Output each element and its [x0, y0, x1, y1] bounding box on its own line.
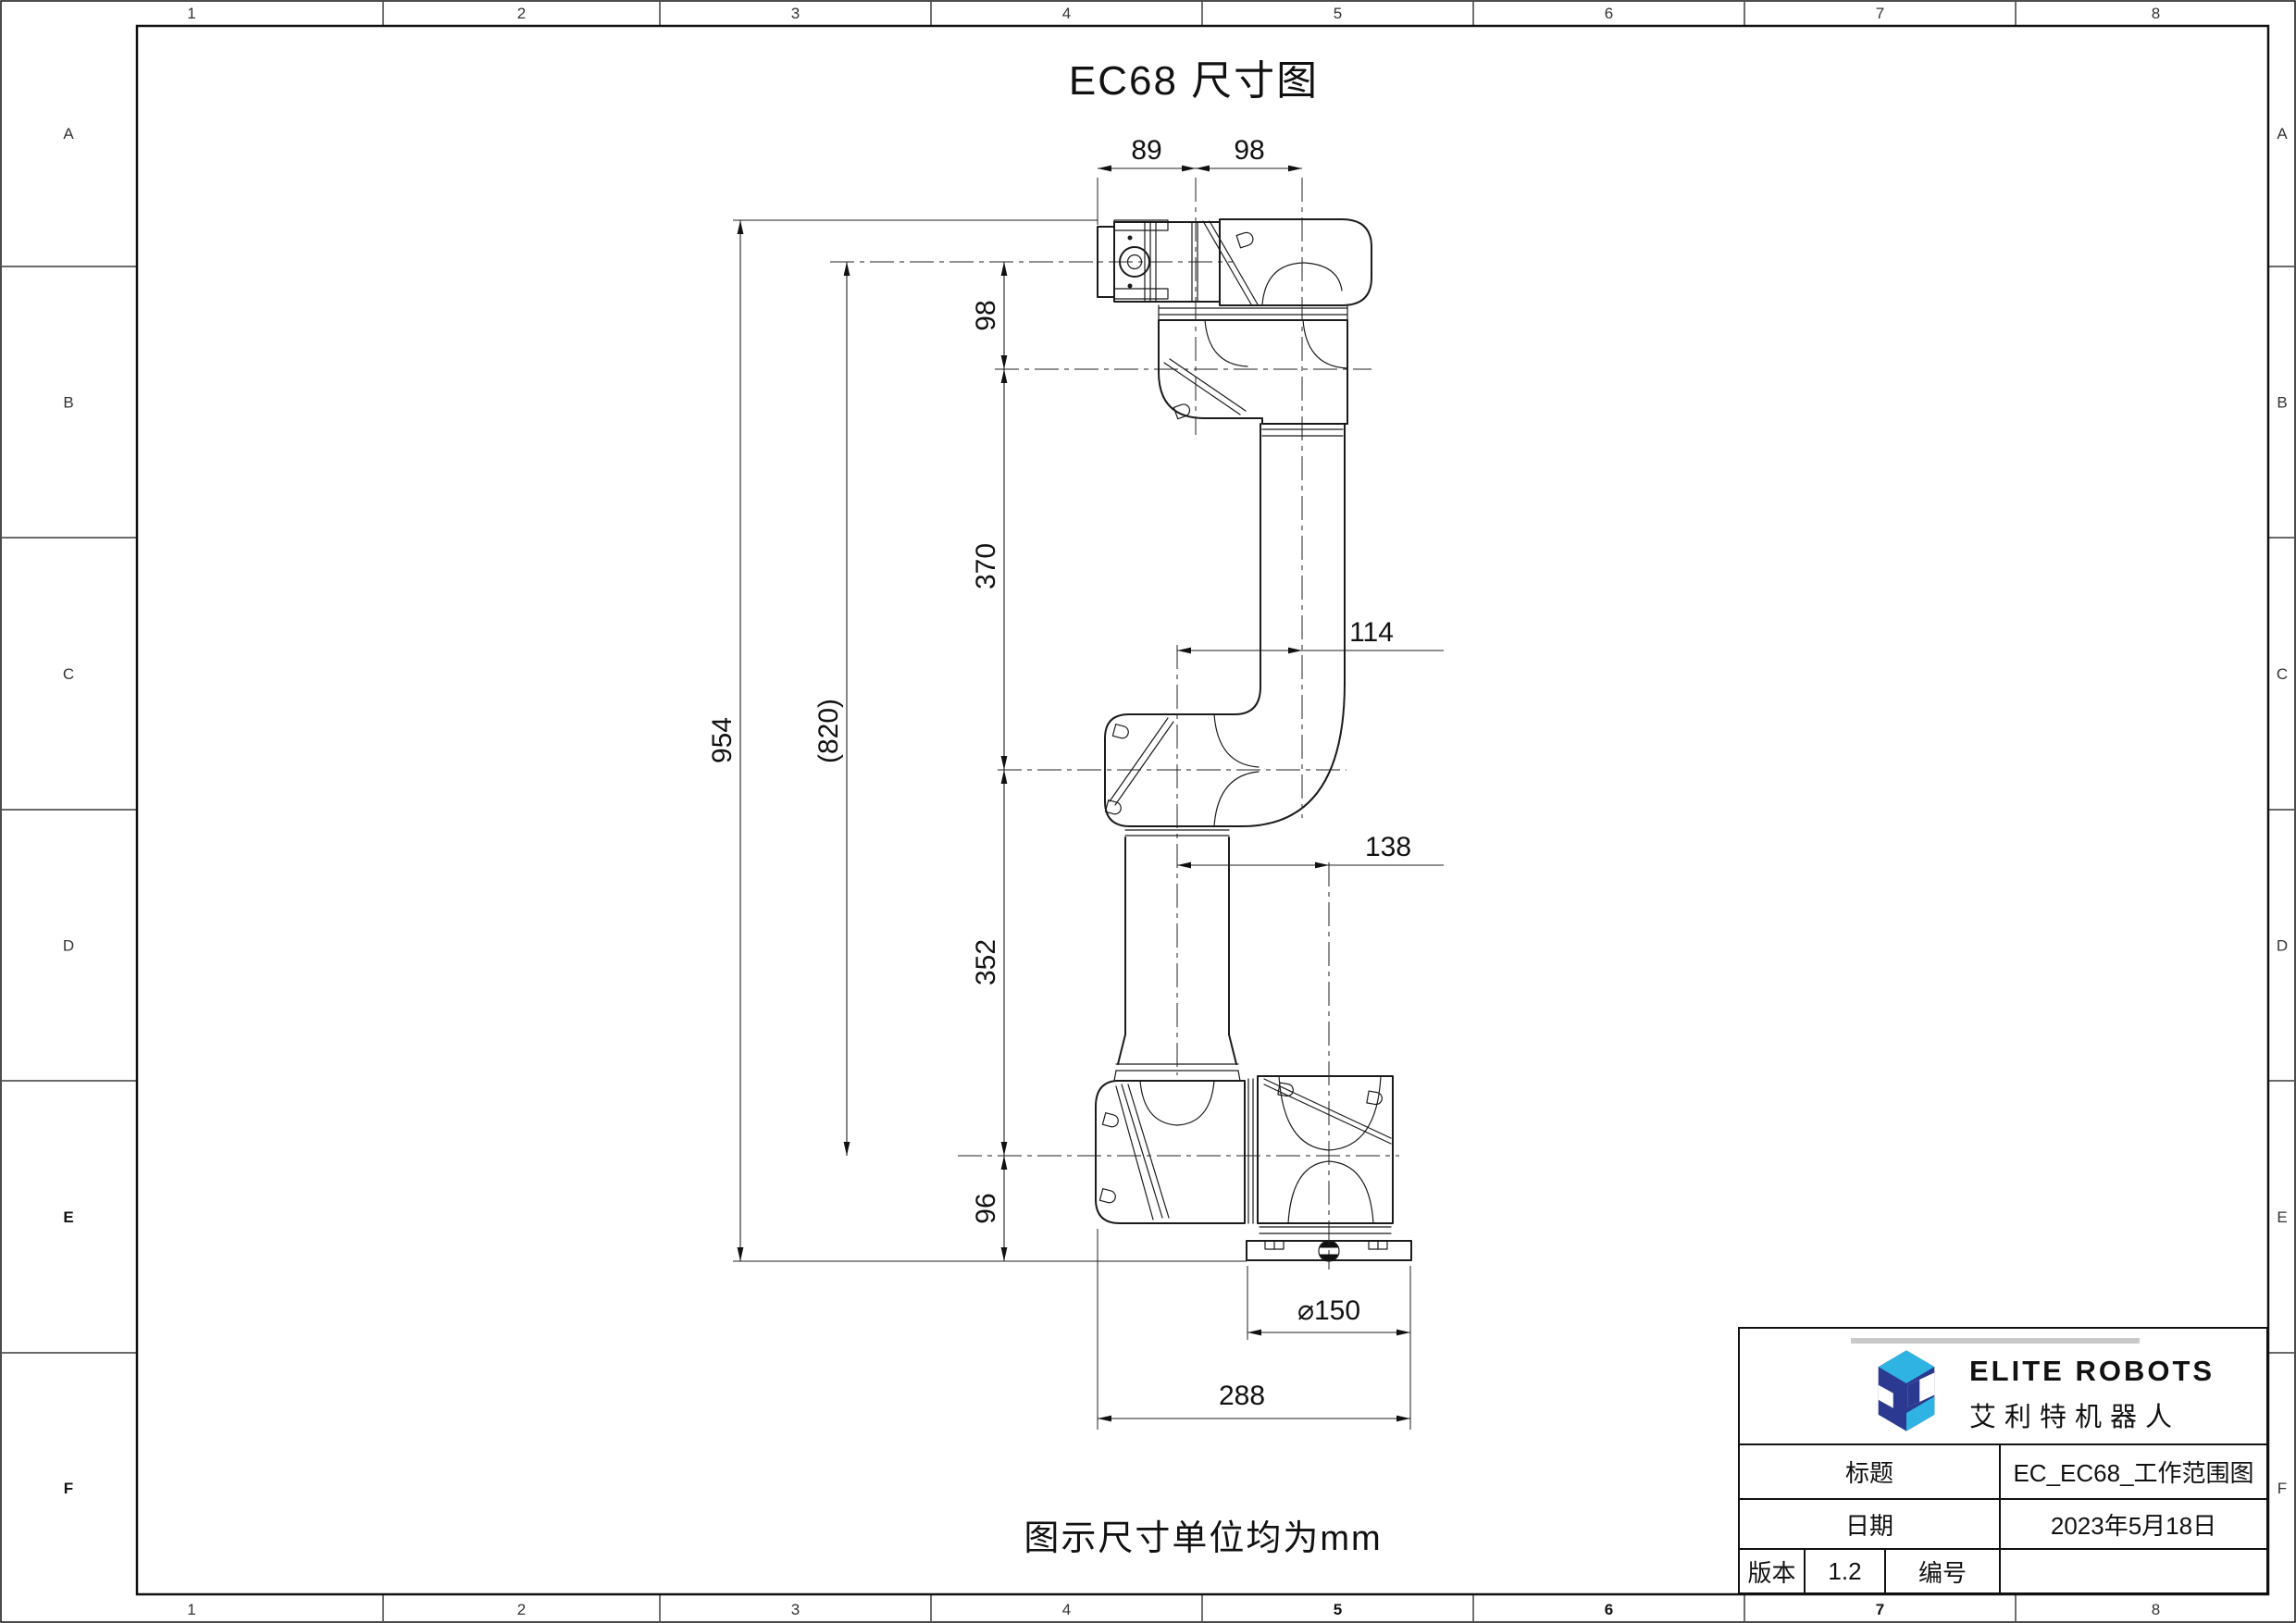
- date-label: 日期: [1740, 1500, 1999, 1548]
- grid-col-label-top: 3: [791, 5, 800, 22]
- grid-col-label-top: 1: [187, 5, 195, 22]
- dim-352: 352: [971, 939, 1001, 985]
- grid-row-label-right: E: [2277, 1208, 2287, 1226]
- robot-arm-drawing: [830, 178, 1411, 1270]
- drawing-title: EC68 尺寸图: [1069, 58, 1319, 104]
- title-row: 标题 EC_EC68_工作范围图: [1740, 1443, 2266, 1498]
- dim-98-top: 98: [1234, 135, 1264, 166]
- tool-flange: [1098, 220, 1220, 302]
- version-row: 版本 1.2 编号: [1740, 1548, 2266, 1592]
- grid-row-label-left: E: [63, 1208, 73, 1226]
- grid-col-label-top: 6: [1605, 5, 1613, 22]
- dim-954: 954: [707, 717, 738, 763]
- title-label: 标题: [1740, 1445, 1999, 1498]
- dim-89: 89: [1131, 135, 1161, 166]
- grid-row-label-left: B: [63, 394, 73, 412]
- grid-row-label-right: F: [2277, 1480, 2287, 1497]
- grid-col-label-bottom: 1: [187, 1601, 195, 1618]
- date-value: 2023年5月18日: [1999, 1500, 2266, 1548]
- number-label: 编号: [1884, 1550, 1999, 1592]
- grid-col-label-top: 4: [1062, 5, 1071, 22]
- grid-col-label-top: 8: [2152, 5, 2160, 22]
- title-value: EC_EC68_工作范围图: [1999, 1445, 2266, 1498]
- version-label: 版本: [1740, 1550, 1804, 1592]
- grid-row-label-left: D: [63, 937, 74, 955]
- grid-col-label-bottom: 7: [1876, 1601, 1884, 1618]
- elbow-joint: [1105, 683, 1345, 836]
- version-value: 1.2: [1804, 1550, 1884, 1592]
- shoulder-joint: [1096, 1079, 1258, 1223]
- grid-col-label-top: 2: [517, 5, 526, 22]
- dimension-lines: 89 98 954 (820) 98 370 352 96 114 138 ⌀1…: [707, 135, 1444, 1430]
- dim-138: 138: [1365, 832, 1411, 862]
- grid-col-label-top: 7: [1876, 5, 1884, 22]
- dim-288: 288: [1219, 1381, 1265, 1411]
- grid-row-label-right: D: [2277, 937, 2288, 955]
- grid-row-label-right: C: [2277, 665, 2288, 683]
- grid-col-label-bottom: 2: [517, 1601, 526, 1618]
- date-row: 日期 2023年5月18日: [1740, 1498, 2266, 1548]
- dim-114: 114: [1349, 617, 1394, 648]
- base-column: [1258, 1076, 1393, 1233]
- logo-divider-bar: [1851, 1338, 2140, 1344]
- grid-row-label-left: A: [63, 125, 74, 142]
- grid-row-label-left: F: [64, 1480, 73, 1497]
- grid-col-label-bottom: 5: [1334, 1601, 1342, 1618]
- dim-98-side: 98: [971, 300, 1001, 330]
- title-block-logo-row: ELITE ROBOTS 艾利特机器人: [1740, 1329, 2266, 1443]
- brand-name-zh: 艾利特机器人: [1969, 1395, 2215, 1434]
- grid-row-label-left: C: [63, 665, 74, 683]
- grid-row-label-right: A: [2277, 125, 2288, 142]
- dim-370: 370: [971, 543, 1001, 589]
- drawing-sheet: 1122334455667788AABBCCDDEEFF EC68 尺寸图 图示…: [0, 0, 2296, 1623]
- number-value: [1999, 1550, 2266, 1592]
- title-block: ELITE ROBOTS 艾利特机器人 标题 EC_EC68_工作范围图 日期 …: [1738, 1327, 2268, 1594]
- centerlines: [830, 178, 1399, 1270]
- grid-col-label-top: 5: [1334, 5, 1342, 22]
- dim-96: 96: [971, 1193, 1001, 1223]
- brand-text: ELITE ROBOTS 艾利特机器人: [1969, 1355, 2215, 1434]
- grid-col-label-bottom: 8: [2152, 1601, 2160, 1618]
- dim-820: (820): [813, 699, 844, 763]
- dim-dia-150: ⌀150: [1297, 1295, 1360, 1326]
- wrist2-block: [1159, 305, 1347, 424]
- grid-col-label-bottom: 3: [791, 1601, 800, 1618]
- units-note: 图示尺寸单位均为mm: [1024, 1519, 1382, 1558]
- grid-col-label-bottom: 4: [1062, 1601, 1071, 1618]
- grid-col-label-bottom: 6: [1605, 1601, 1613, 1618]
- brand-name-en: ELITE ROBOTS: [1969, 1355, 2215, 1388]
- grid-row-label-right: B: [2277, 394, 2287, 412]
- elite-robots-logo-icon: [1864, 1345, 1949, 1436]
